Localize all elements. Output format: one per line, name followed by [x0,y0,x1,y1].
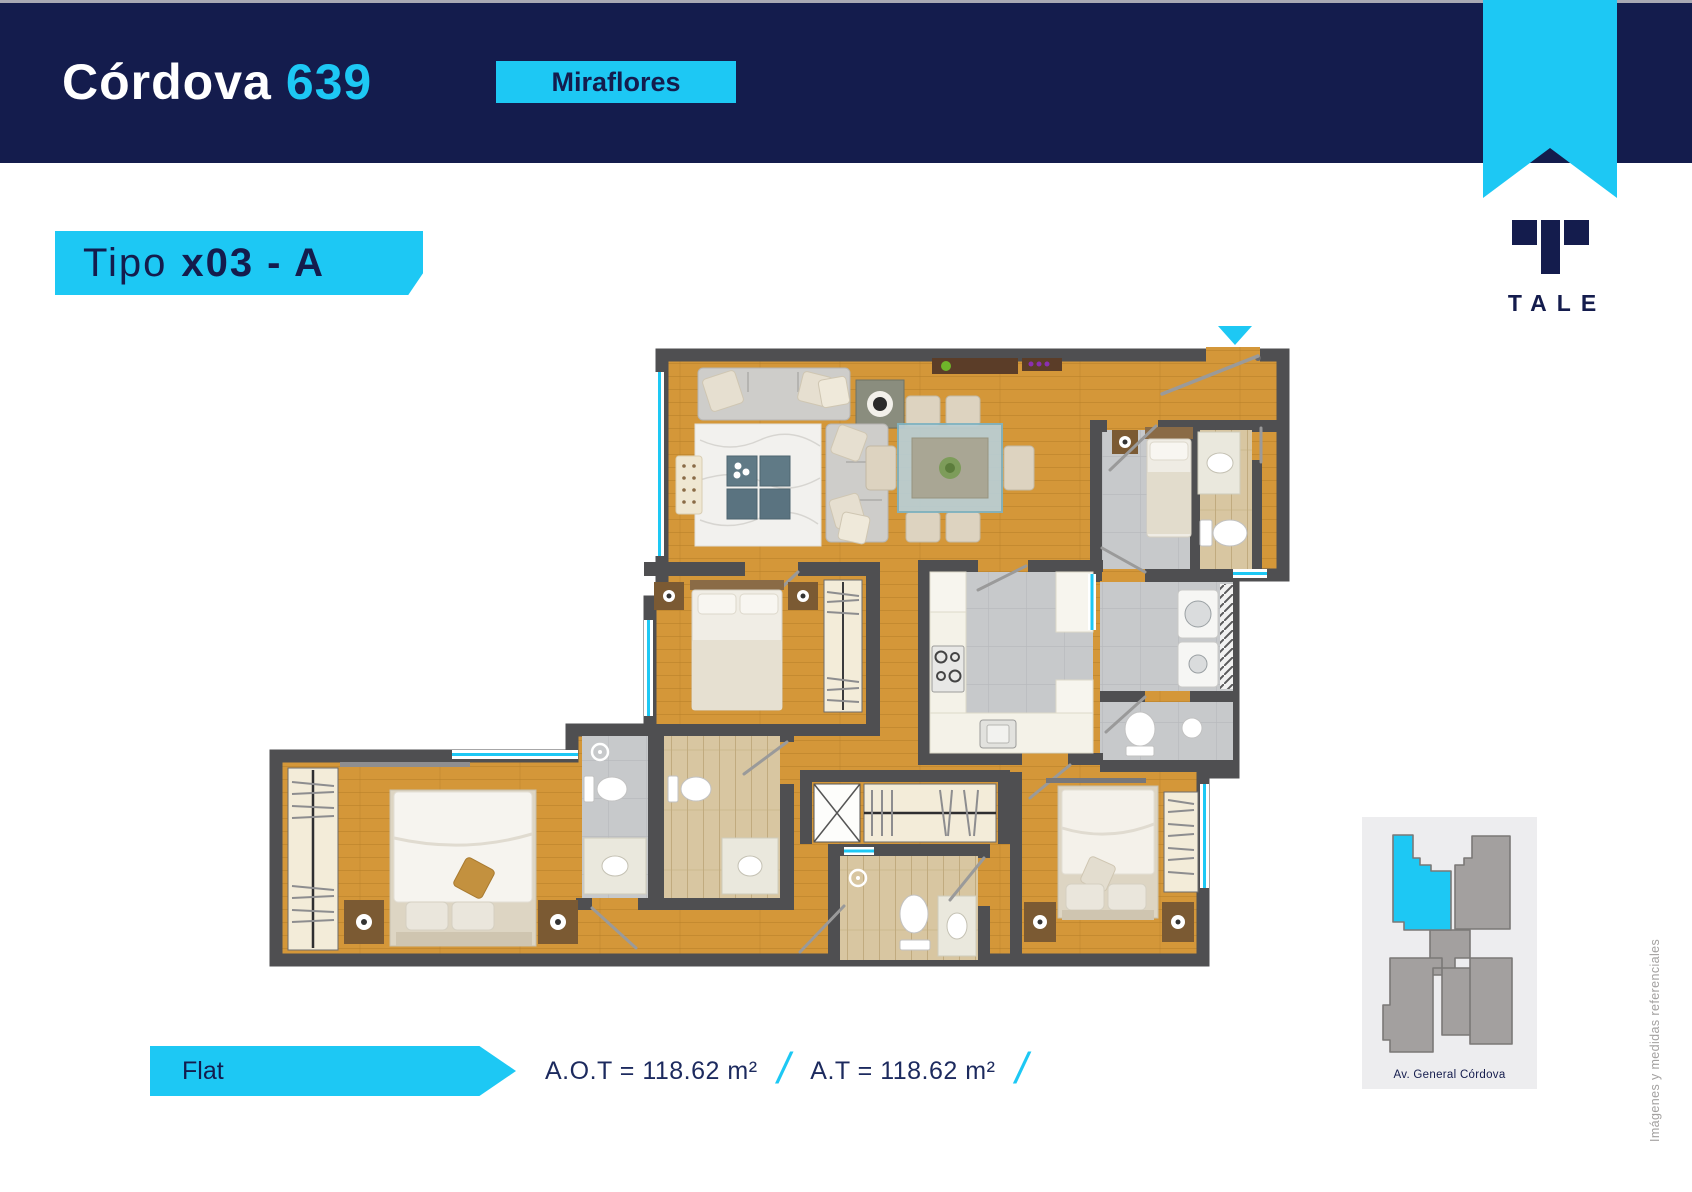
bathroom-bottom [800,844,990,960]
key-plan-drawing [1362,817,1537,1089]
hall-closet [800,770,1010,844]
bathroom-mid [664,736,794,898]
area-t-value: A.T = 118.62 m² [810,1057,995,1086]
page: Córdova639 Miraflores TALE Tipo x03 - A [0,0,1692,1192]
separator-slash-icon: / [778,1044,791,1094]
category-banner: Flat [150,1046,516,1096]
category-label: Flat [182,1057,224,1086]
separator-slash-icon: / [1015,1044,1028,1094]
bathroom-3 [1100,691,1233,772]
highlighted-unit [1393,835,1451,930]
area-measurements: A.O.T = 118.62 m² / A.T = 118.62 m² / [545,1046,1048,1096]
area-ot-value: A.O.T = 118.62 m² [545,1057,758,1086]
entry-arrow-icon [1218,326,1252,345]
disclaimer-note: Imágenes y medidas referenciales [1648,922,1662,1142]
kitchen [918,560,1103,798]
building-key-plan: Av. General Córdova [1362,817,1537,1089]
street-label: Av. General Córdova [1362,1069,1537,1081]
